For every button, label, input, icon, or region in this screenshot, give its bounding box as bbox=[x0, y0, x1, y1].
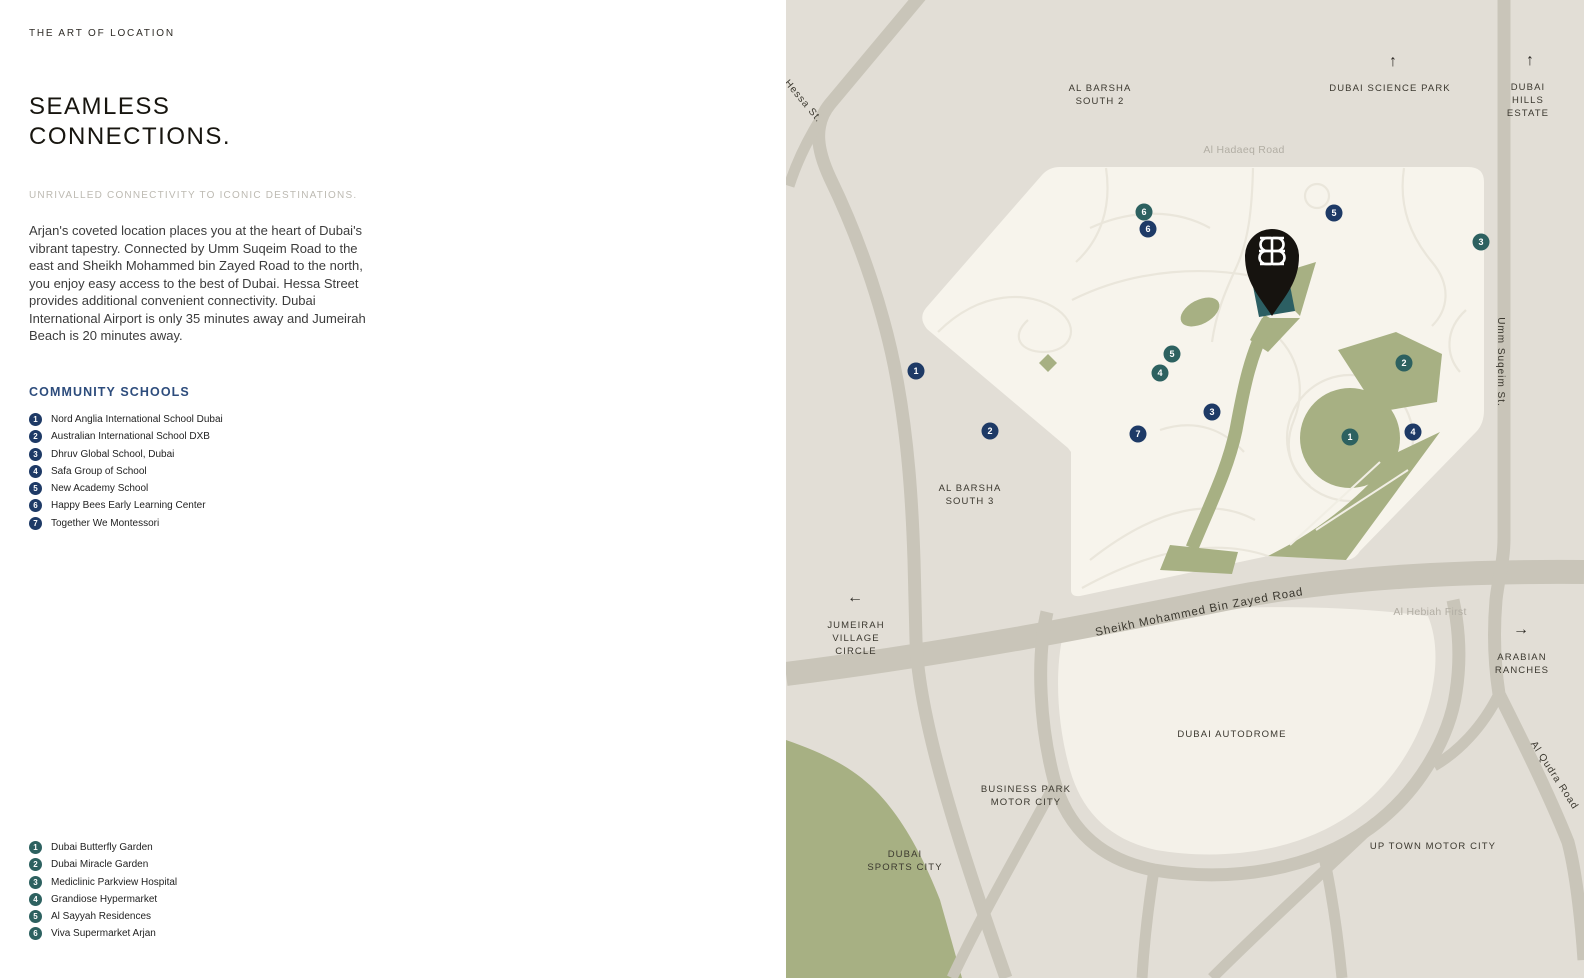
page-title-line2: CONNECTIONS. bbox=[29, 122, 231, 152]
school-list-item: 2Australian International School DXB bbox=[29, 430, 223, 443]
svg-text:2: 2 bbox=[987, 426, 992, 436]
school-item-label: Australian International School DXB bbox=[51, 431, 210, 442]
road-label-umm-suqeim-st: Umm Suqeim St. bbox=[1495, 317, 1506, 407]
landmark-marker-badge: 3 bbox=[29, 876, 42, 889]
text-column: THE ART OF LOCATION SEAMLESS CONNECTIONS… bbox=[0, 0, 786, 978]
svg-text:6: 6 bbox=[1141, 207, 1146, 217]
landmark-list-item: 6Viva Supermarket Arjan bbox=[29, 927, 177, 940]
school-map-marker: 2 bbox=[982, 423, 999, 440]
school-item-label: Together We Montessori bbox=[51, 518, 159, 529]
landmark-list-item: 3Mediclinic Parkview Hospital bbox=[29, 876, 177, 889]
school-map-marker: 7 bbox=[1130, 426, 1147, 443]
subtitle: UNRIVALLED CONNECTIVITY TO ICONIC DESTIN… bbox=[29, 190, 357, 201]
school-marker-badge: 4 bbox=[29, 465, 42, 478]
landmark-item-label: Grandiose Hypermarket bbox=[51, 894, 157, 905]
school-item-label: Safa Group of School bbox=[51, 466, 147, 477]
page-title-line1: SEAMLESS bbox=[29, 92, 231, 122]
school-marker-badge: 6 bbox=[29, 499, 42, 512]
direction-arrow-icon: ↑ bbox=[1526, 52, 1534, 69]
school-marker-badge: 2 bbox=[29, 430, 42, 443]
school-map-marker: 5 bbox=[1326, 205, 1343, 222]
landmark-map-marker: 1 bbox=[1342, 429, 1359, 446]
school-list-item: 5New Academy School bbox=[29, 482, 223, 495]
page-title: SEAMLESS CONNECTIONS. bbox=[29, 92, 231, 152]
school-list-item: 3Dhruv Global School, Dubai bbox=[29, 448, 223, 461]
landmark-item-label: Dubai Miracle Garden bbox=[51, 859, 148, 870]
svg-text:1: 1 bbox=[913, 366, 918, 376]
schools-heading: COMMUNITY SCHOOLS bbox=[29, 385, 190, 399]
landmark-marker-badge: 1 bbox=[29, 841, 42, 854]
area-label-dubai-autodrome: DUBAI AUTODROME bbox=[1177, 729, 1286, 740]
schools-legend: 1Nord Anglia International School Dubai2… bbox=[29, 413, 223, 534]
landmark-marker-badge: 6 bbox=[29, 927, 42, 940]
direction-arrow-icon: ↑ bbox=[1389, 53, 1397, 70]
road-label-al-hebiah-first: Al Hebiah First bbox=[1393, 606, 1466, 618]
road-label-al-hadaeq-road: Al Hadaeq Road bbox=[1203, 144, 1284, 156]
school-map-marker: 4 bbox=[1405, 424, 1422, 441]
landmark-map-marker: 5 bbox=[1164, 346, 1181, 363]
direction-arrow-icon: → bbox=[1513, 621, 1529, 638]
brochure-page: THE ART OF LOCATION SEAMLESS CONNECTIONS… bbox=[0, 0, 1584, 978]
landmark-list-item: 1Dubai Butterfly Garden bbox=[29, 841, 177, 854]
svg-text:5: 5 bbox=[1331, 208, 1336, 218]
svg-text:6: 6 bbox=[1145, 224, 1150, 234]
school-marker-badge: 7 bbox=[29, 517, 42, 530]
area-label-jumeirah-village-circle: JUMEIRAHVILLAGECIRCLE bbox=[827, 620, 884, 657]
school-map-marker: 1 bbox=[908, 363, 925, 380]
direction-arrow-icon: ← bbox=[847, 589, 863, 606]
svg-text:7: 7 bbox=[1135, 429, 1140, 439]
landmark-map-marker: 2 bbox=[1396, 355, 1413, 372]
landmark-marker-badge: 2 bbox=[29, 858, 42, 871]
landmark-map-marker: 6 bbox=[1136, 204, 1153, 221]
landmarks-legend: 1Dubai Butterfly Garden2Dubai Miracle Ga… bbox=[29, 841, 177, 945]
svg-text:1: 1 bbox=[1347, 432, 1352, 442]
area-label-dubai-hills-estate: DUBAIHILLSESTATE bbox=[1507, 82, 1549, 119]
landmark-list-item: 5Al Sayyah Residences bbox=[29, 910, 177, 923]
school-map-marker: 3 bbox=[1204, 404, 1221, 421]
eyebrow: THE ART OF LOCATION bbox=[29, 28, 175, 39]
landmark-item-label: Al Sayyah Residences bbox=[51, 911, 151, 922]
body-copy: Arjan's coveted location places you at t… bbox=[29, 222, 381, 345]
landmark-item-label: Mediclinic Parkview Hospital bbox=[51, 877, 177, 888]
landmark-item-label: Viva Supermarket Arjan bbox=[51, 928, 156, 939]
landmark-marker-badge: 4 bbox=[29, 893, 42, 906]
svg-text:3: 3 bbox=[1209, 407, 1214, 417]
school-item-label: New Academy School bbox=[51, 483, 148, 494]
svg-text:3: 3 bbox=[1478, 237, 1483, 247]
school-item-label: Nord Anglia International School Dubai bbox=[51, 414, 223, 425]
school-list-item: 6Happy Bees Early Learning Center bbox=[29, 499, 223, 512]
svg-text:4: 4 bbox=[1157, 368, 1162, 378]
svg-text:2: 2 bbox=[1401, 358, 1406, 368]
school-map-marker: 6 bbox=[1140, 221, 1157, 238]
school-list-item: 1Nord Anglia International School Dubai bbox=[29, 413, 223, 426]
svg-text:4: 4 bbox=[1410, 427, 1415, 437]
school-list-item: 4Safa Group of School bbox=[29, 465, 223, 478]
school-marker-badge: 5 bbox=[29, 482, 42, 495]
school-marker-badge: 1 bbox=[29, 413, 42, 426]
svg-text:5: 5 bbox=[1169, 349, 1174, 359]
landmark-map-marker: 3 bbox=[1473, 234, 1490, 251]
area-label-dubai-science-park: DUBAI SCIENCE PARK bbox=[1329, 83, 1451, 94]
landmark-list-item: 2Dubai Miracle Garden bbox=[29, 858, 177, 871]
school-marker-badge: 3 bbox=[29, 448, 42, 461]
location-map: Sheikh Mohammed Bin Zayed Road AL BARSHA… bbox=[786, 0, 1584, 978]
landmark-marker-badge: 5 bbox=[29, 910, 42, 923]
landmark-list-item: 4Grandiose Hypermarket bbox=[29, 893, 177, 906]
school-list-item: 7Together We Montessori bbox=[29, 517, 223, 530]
school-item-label: Happy Bees Early Learning Center bbox=[51, 500, 206, 511]
landmark-map-marker: 4 bbox=[1152, 365, 1169, 382]
landmark-item-label: Dubai Butterfly Garden bbox=[51, 842, 153, 853]
area-label-up-town-motor-city: UP TOWN MOTOR CITY bbox=[1370, 841, 1496, 852]
school-item-label: Dhruv Global School, Dubai bbox=[51, 449, 174, 460]
map-svg: Sheikh Mohammed Bin Zayed Road AL BARSHA… bbox=[786, 0, 1584, 978]
